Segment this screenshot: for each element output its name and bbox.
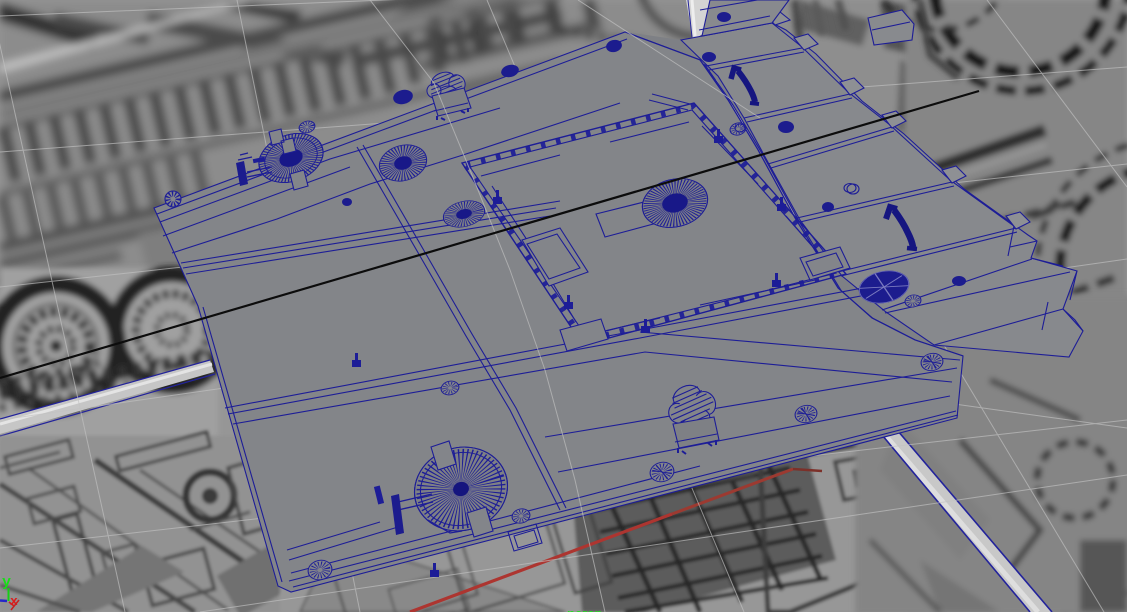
svg-text:y: y [2, 574, 11, 591]
svg-text:persp: persp [567, 606, 602, 612]
